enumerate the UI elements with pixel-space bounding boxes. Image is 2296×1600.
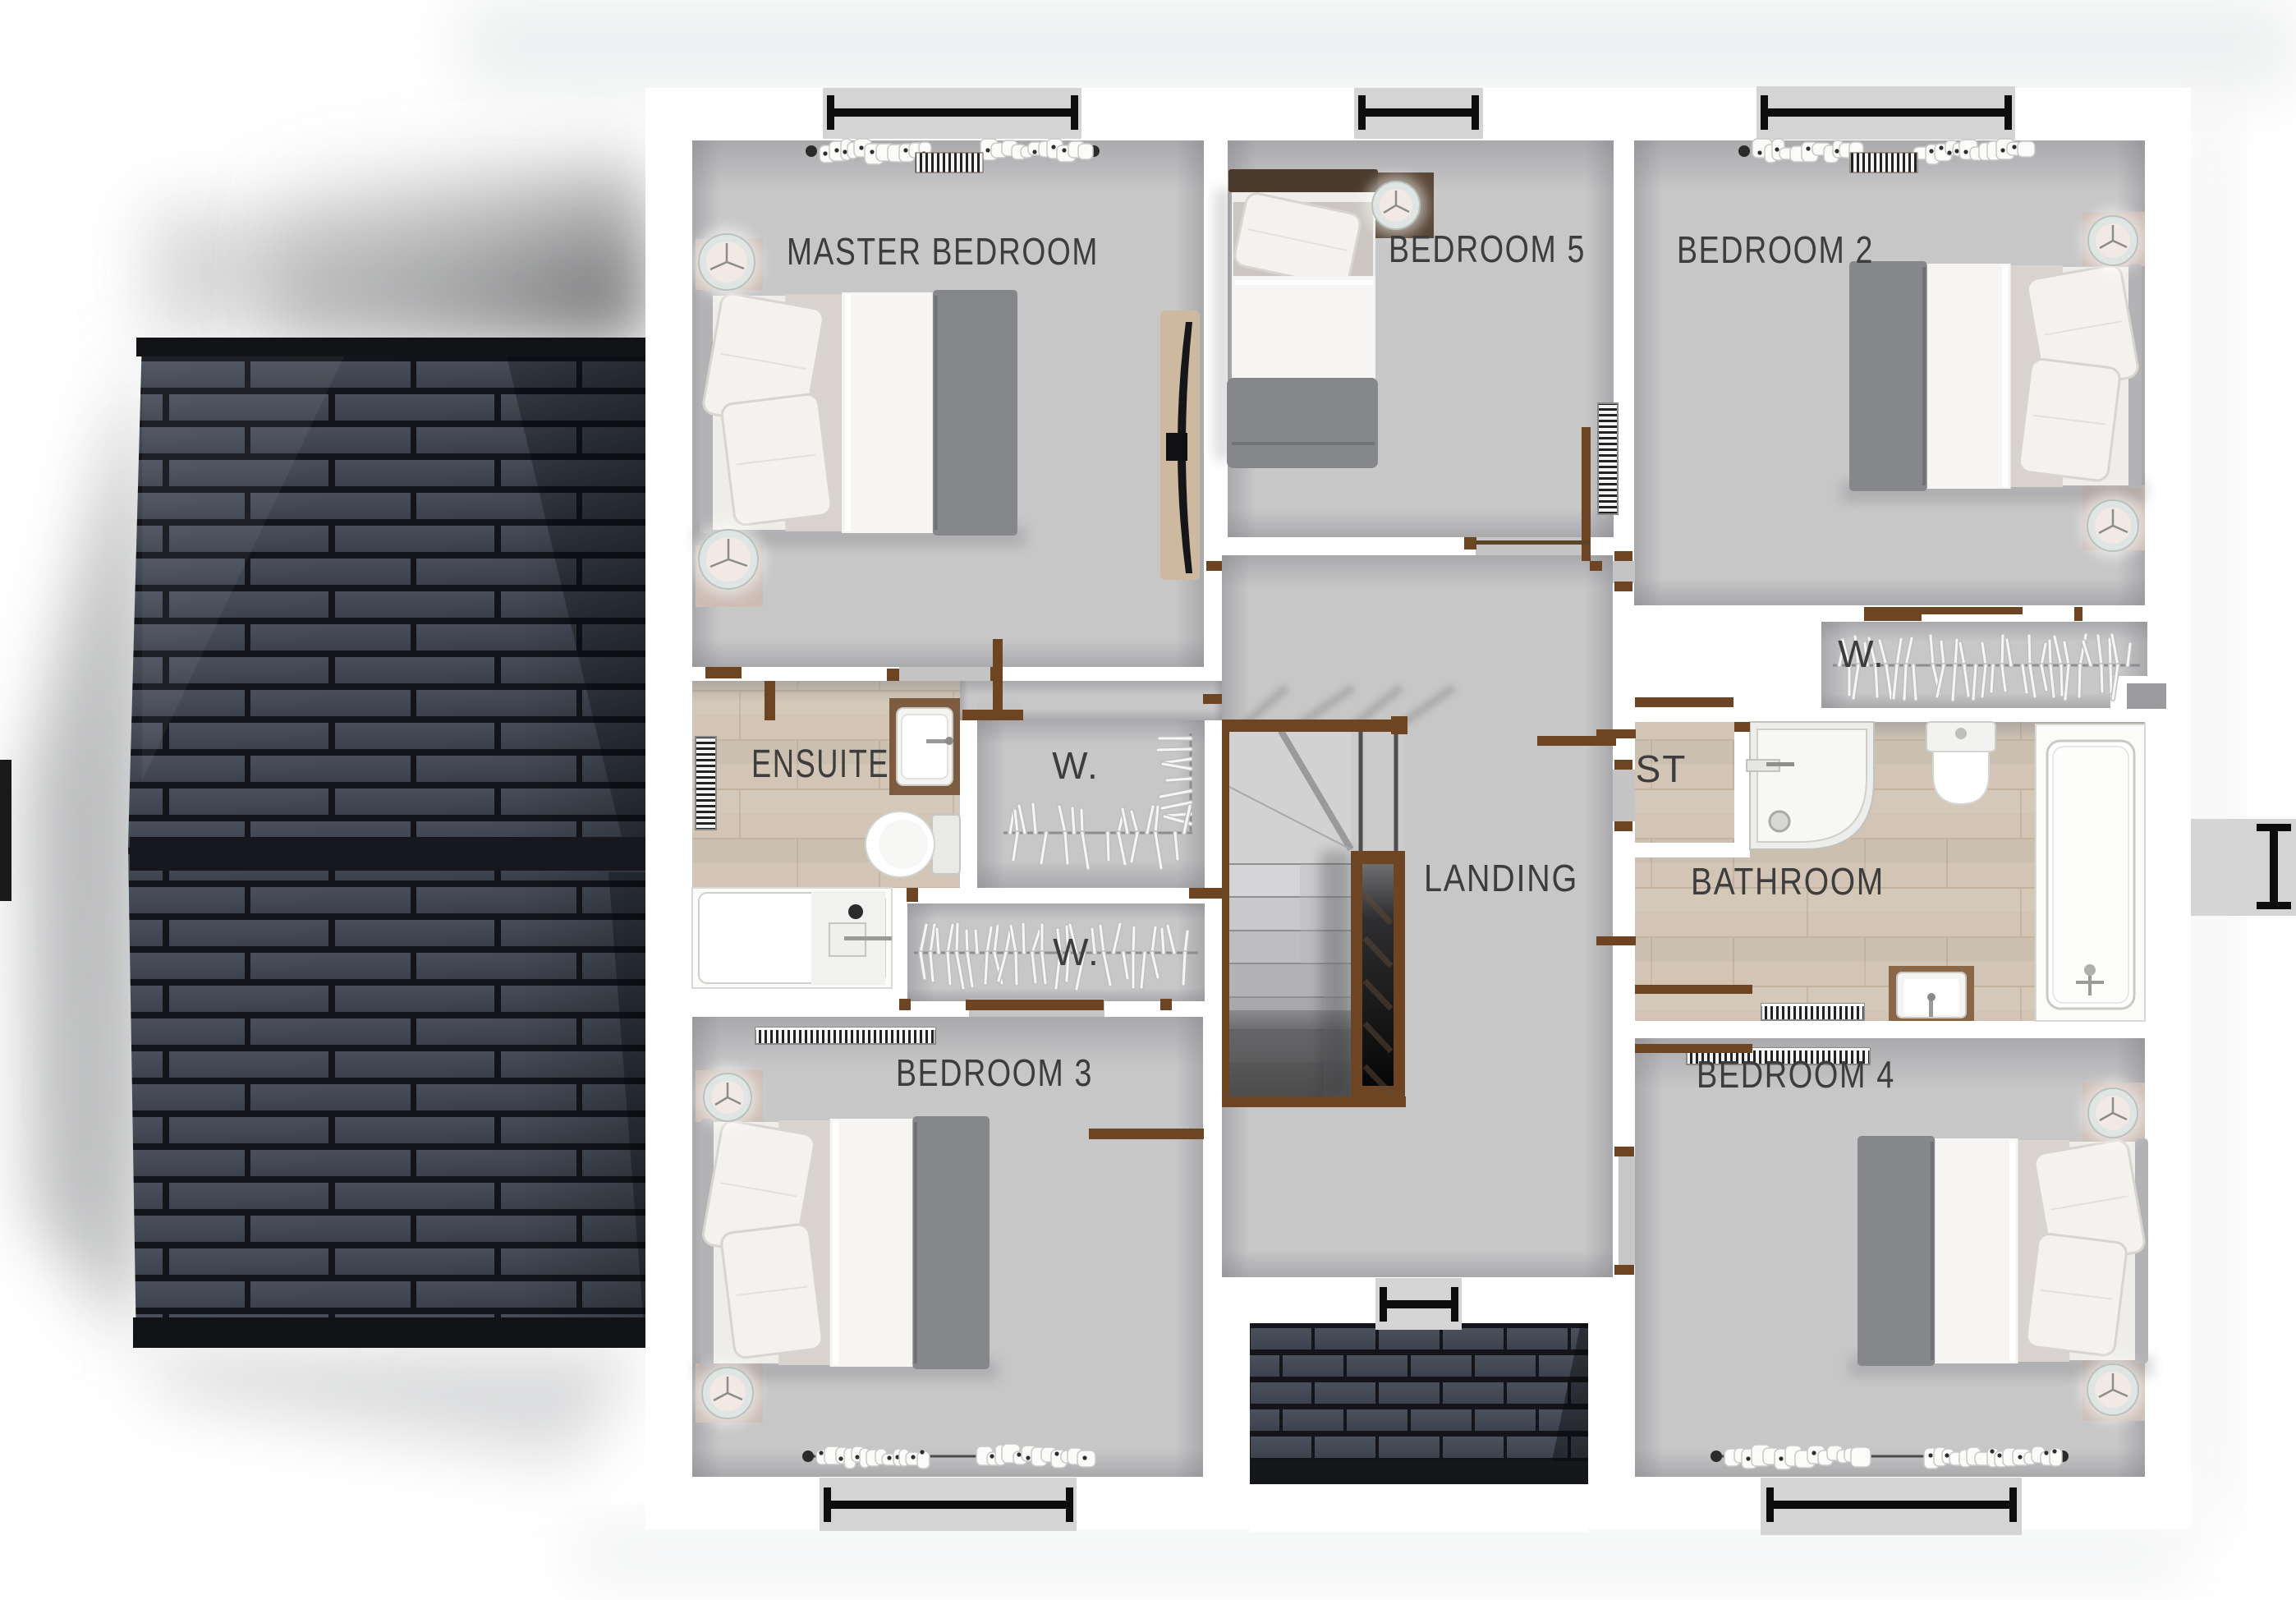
svg-text:BEDROOM 4: BEDROOM 4 xyxy=(1697,1053,1895,1096)
svg-text:LANDING: LANDING xyxy=(1424,857,1578,899)
svg-text:BEDROOM 3: BEDROOM 3 xyxy=(896,1051,1093,1094)
svg-text:ST: ST xyxy=(1636,747,1688,790)
svg-text:W.: W. xyxy=(1052,744,1100,787)
svg-text:W.: W. xyxy=(1053,931,1100,973)
svg-text:W.: W. xyxy=(1838,632,1885,675)
svg-text:BATHROOM: BATHROOM xyxy=(1691,860,1885,903)
svg-text:BEDROOM 5: BEDROOM 5 xyxy=(1389,228,1586,270)
svg-text:BEDROOM 2: BEDROOM 2 xyxy=(1677,228,1874,271)
svg-text:MASTER BEDROOM: MASTER BEDROOM xyxy=(787,230,1099,273)
svg-text:ENSUITE: ENSUITE xyxy=(751,743,889,786)
